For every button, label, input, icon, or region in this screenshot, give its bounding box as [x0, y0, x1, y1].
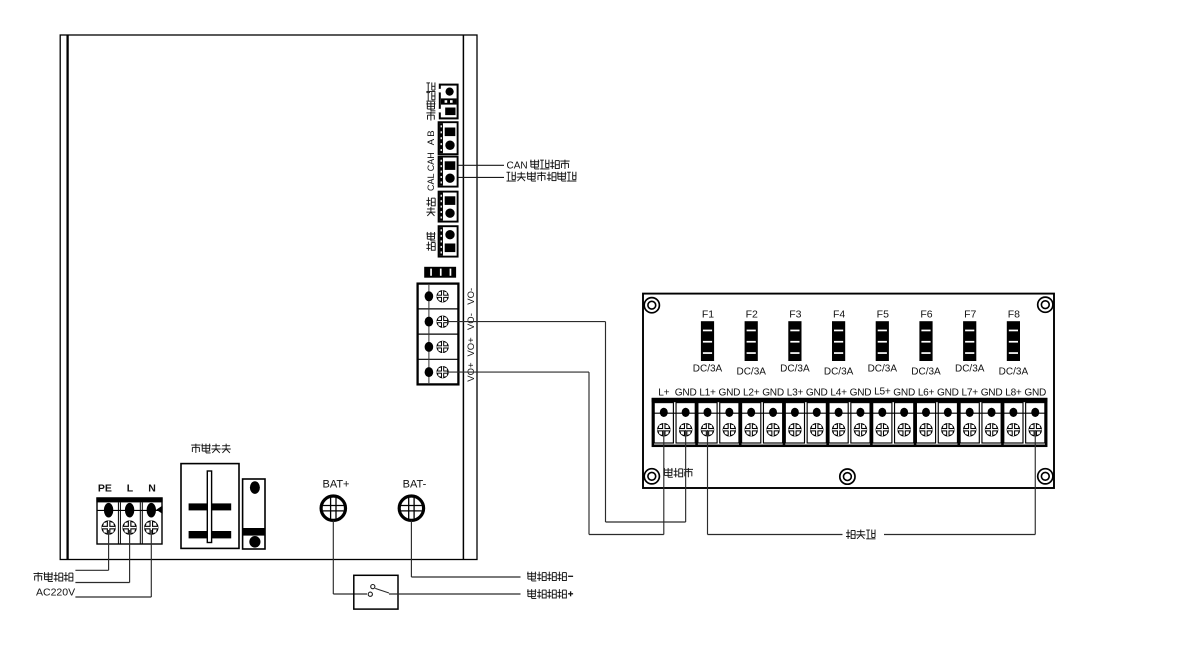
svg-text:BAT+: BAT+ — [322, 479, 349, 491]
svg-text:PE: PE — [98, 483, 112, 495]
svg-text:L7+: L7+ — [962, 388, 979, 399]
svg-text:F3: F3 — [789, 309, 801, 321]
svg-text:L+: L+ — [658, 388, 669, 399]
svg-text:N: N — [148, 483, 156, 495]
svg-text:F7: F7 — [964, 309, 976, 321]
svg-text:A B: A B — [426, 130, 437, 145]
svg-text:DC/3A: DC/3A — [911, 367, 941, 378]
svg-text:DC/3A: DC/3A — [999, 367, 1029, 378]
svg-text:GND: GND — [762, 388, 784, 399]
svg-text:DC/3A: DC/3A — [780, 364, 810, 375]
svg-text:L2+: L2+ — [743, 388, 760, 399]
svg-text:L8+: L8+ — [1005, 388, 1022, 399]
svg-text:DC/3A: DC/3A — [736, 367, 766, 378]
svg-text:F6: F6 — [920, 309, 932, 321]
svg-text:GND: GND — [981, 388, 1003, 399]
svg-text:L4+: L4+ — [830, 388, 847, 399]
svg-text:DC/3A: DC/3A — [868, 364, 898, 375]
svg-text:CAL CAH: CAL CAH — [426, 152, 436, 191]
svg-text:DC/3A: DC/3A — [693, 364, 723, 375]
svg-text:DC/3A: DC/3A — [955, 364, 985, 375]
svg-text:F4: F4 — [833, 309, 845, 321]
svg-text:L3+: L3+ — [787, 388, 804, 399]
svg-text:L5+: L5+ — [874, 387, 891, 398]
svg-text:CAN: CAN — [507, 160, 528, 171]
svg-text:F2: F2 — [746, 309, 758, 321]
svg-text:GND: GND — [675, 388, 697, 399]
svg-text:GND: GND — [937, 388, 959, 399]
svg-text:BAT-: BAT- — [403, 479, 427, 491]
svg-text:L6+: L6+ — [918, 388, 935, 399]
svg-text:F8: F8 — [1008, 309, 1020, 321]
svg-text:GND: GND — [1024, 388, 1046, 399]
svg-text:VO-: VO- — [466, 288, 477, 305]
svg-text:GND: GND — [850, 388, 872, 399]
svg-text:DC/3A: DC/3A — [824, 367, 854, 378]
svg-text:F1: F1 — [702, 309, 714, 321]
svg-text:L: L — [127, 483, 134, 495]
svg-text:F5: F5 — [877, 309, 889, 321]
svg-text:AC220V: AC220V — [36, 587, 75, 599]
svg-text:GND: GND — [893, 388, 915, 399]
svg-text:L1+: L1+ — [699, 388, 716, 399]
svg-text:VO+: VO+ — [466, 337, 477, 357]
svg-text:GND: GND — [806, 388, 828, 399]
svg-text:GND: GND — [719, 388, 741, 399]
